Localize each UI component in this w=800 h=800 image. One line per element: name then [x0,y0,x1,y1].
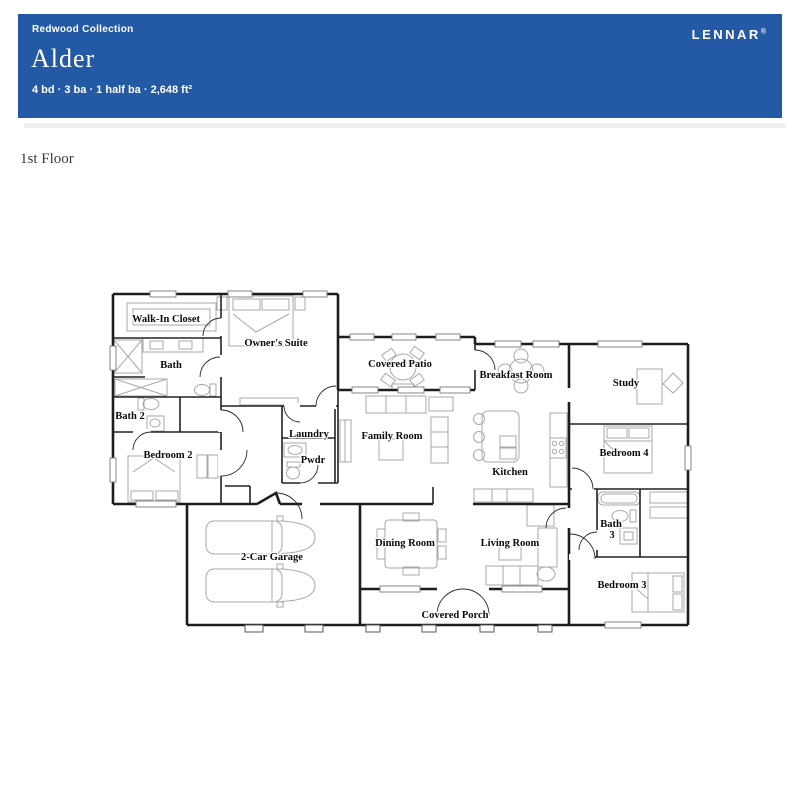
room-label-bath-3-line2: 3 [609,530,614,541]
room-label-2-car-garage: 2-Car Garage [241,552,303,563]
room-label-bath: Bath [160,360,182,371]
lennar-logo: LENNAR® [692,27,766,42]
room-label-bedroom-3: Bedroom 3 [597,580,646,591]
room-label-walk-in-closet: Walk-In Closet [132,314,200,325]
tv-unit [431,417,448,463]
room-label-pwdr: Pwdr [301,455,326,466]
bath3-sink [620,528,637,544]
room-label-family-room: Family Room [362,431,423,442]
coffee-table [379,439,403,460]
floor-plan: Walk-In Closet Owner's Suite Bath Bath 2… [100,285,700,637]
bath2-toilet [143,399,159,410]
header-banner: Redwood Collection Alder 4 bd · 3 ba · 1… [18,14,782,118]
collection-label: Redwood Collection [32,24,134,35]
bath-toilet [195,385,210,396]
kitchen-back-counter [474,489,533,502]
side-table [537,567,555,581]
bath-vanity [143,338,203,352]
living-sofa [486,566,538,585]
desk [637,369,662,404]
room-label-owners-suite: Owner's Suite [244,338,308,349]
room-label-laundry: Laundry [289,429,329,440]
sofa [366,396,426,413]
registered-mark-icon: ® [761,29,766,36]
lennar-wordmark: LENNAR [692,27,761,42]
room-label-living-room: Living Room [481,538,540,549]
pwdr-toilet [287,467,300,479]
room-label-bath-3-line1: Bath [600,519,622,530]
room-label-bedroom-4: Bedroom 4 [599,448,649,459]
floor-plan-drawing: Walk-In Closet Owner's Suite Bath Bath 2… [100,285,700,637]
room-label-dining-room: Dining Room [375,538,435,549]
room-label-covered-porch: Covered Porch [422,610,489,621]
car-2 [206,564,315,607]
desk-chair [663,373,683,393]
floor-label: 1st Floor [20,151,74,168]
section-divider [24,123,786,128]
plan-title: Alder [31,44,95,74]
plan-specs: 4 bd · 3 ba · 1 half ba · 2,648 ft² [32,84,192,96]
room-label-bath-2: Bath 2 [115,411,144,422]
stove [550,438,566,458]
room-label-covered-patio: Covered Patio [368,359,432,370]
room-label-breakfast-room: Breakfast Room [479,370,552,381]
room-label-study: Study [613,378,640,389]
room-label-kitchen: Kitchen [492,467,528,478]
interior-walls [113,294,688,557]
room-label-bedroom-2: Bedroom 2 [143,450,192,461]
page: Redwood Collection Alder 4 bd · 3 ba · 1… [0,0,800,800]
bedroom2-bed [128,456,180,502]
sofa-chaise [538,528,557,567]
